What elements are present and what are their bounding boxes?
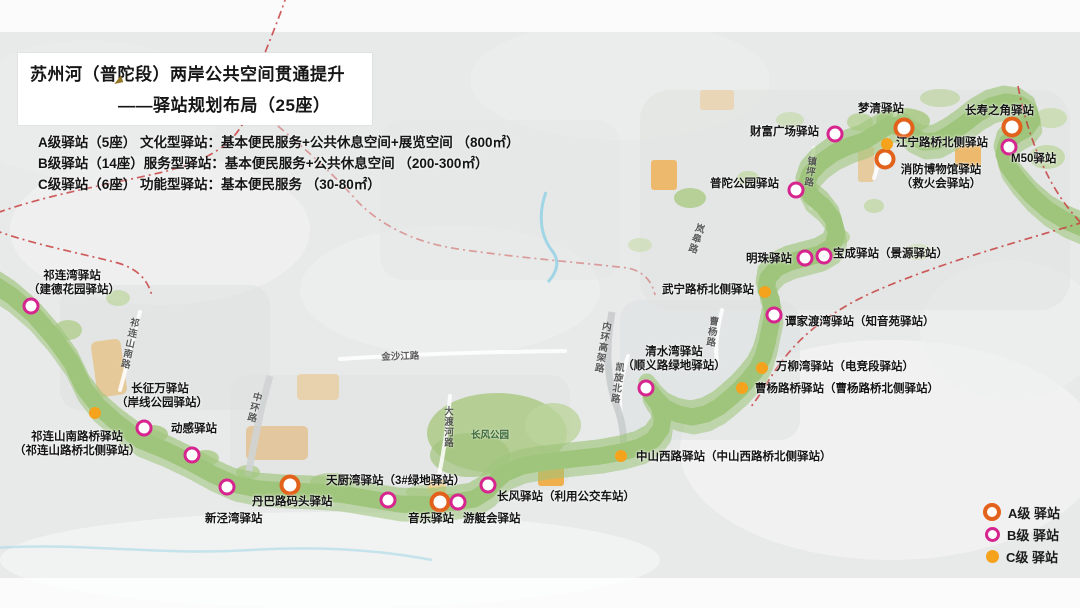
legend-c-level-dot-icon [986,550,999,563]
station-marker-danba-wharf [280,475,301,496]
page-title: 苏州河（普陀段）两岸公共空间贯通提升 [30,60,362,85]
legend-b-level-ring-icon [985,527,1000,542]
legend-a-level-ring-icon [983,503,1001,521]
station-label-m50: M50驿站 [1011,153,1056,167]
station-label-xinjing-bay: 新泾湾驿站 [205,513,263,527]
station-marker-zhongshan-west [615,450,627,462]
title-box: 苏州河（普陀段）两岸公共空间贯通提升 ——驿站规划布局（25座） [18,53,372,125]
station-label-changshou-corner: 长寿之角驿站 [965,105,1034,119]
station-label-caoyang-bridge: 曹杨路桥驿站（曹杨路桥北侧驿站） [755,383,939,397]
station-marker-baocheng [816,248,833,265]
planning-map-slide: 祁连山南路中环路金沙江路大渡河路长风公园内环高架路凯旋北路岚皋路曹杨路镇坪路 梦… [0,0,1080,608]
station-marker-mingzhu [797,250,814,267]
legend-row-a: A级 驿站 [983,501,1060,523]
station-label-changfeng: 长风驿站（利用公交车站） [497,491,635,505]
legend-row-b: B级 驿站 [983,523,1060,545]
legend-c-label: C级 驿站 [1006,547,1058,566]
station-marker-qilian-bay [23,298,40,315]
station-label-qingshui-bay: 清水湾驿站（顺义路绿地驿站） [622,346,726,373]
station-label-jiangning-bridge-north: 江宁路桥北侧驿站 [896,137,988,151]
station-marker-wanliu-bay [756,362,768,374]
station-marker-tanjiadu-bay [766,307,783,324]
station-marker-jiangning-bridge-north [881,138,893,150]
map-legend: A级 驿站 B级 驿站 C级 驿站 [983,501,1060,567]
station-marker-caoyang-bridge [736,382,748,394]
station-marker-xinjing-bay [219,479,236,496]
station-label-mengqing: 梦清驿站 [858,103,904,117]
road-label-jinshajiang-rd: 金沙江路 [381,348,419,363]
class-a-line: A级驿站（5座） 文化型驿站：基本便民服务+公共休息空间+展览空间 （800㎡） [38,132,520,153]
station-marker-putuo-park [788,182,805,199]
station-marker-yachting-club [450,494,467,511]
station-label-wanliu-bay: 万柳湾驿站（电竞段驿站） [776,361,914,375]
road-label-daduhe-rd: 大渡河路 [440,406,454,448]
station-marker-donggan [184,447,201,464]
station-label-caifu-plaza: 财富广场驿站 [750,126,819,140]
station-marker-wuning-bridge-north [759,286,771,298]
station-label-changzheng: 长征万驿站（岸线公园驿站） [116,383,204,410]
legend-a-label: A级 驿站 [1008,503,1060,522]
station-label-baocheng: 宝成驿站（景源驿站） [833,248,948,262]
station-label-yachting-club: 游艇会驿站 [463,513,521,527]
station-label-donggan: 动感驿站 [171,423,217,437]
station-label-yinyue: 音乐驿站 [408,513,454,527]
station-label-putuo-park: 普陀公园驿站 [710,178,779,192]
station-label-qilianshan-bridge: 祁连山南路桥驿站（祁连山路桥北侧驿站） [14,431,140,458]
class-c-line: C级驿站（6座） 功能型驿站：基本便民服务 （30-80㎡） [38,174,520,195]
station-marker-mengqing [894,118,915,139]
station-label-zhongshan-west: 中山西路驿站（中山西路桥北侧驿站） [636,451,832,465]
legend-row-c: C级 驿站 [983,545,1060,567]
classification-legend: A级驿站（5座） 文化型驿站：基本便民服务+公共休息空间+展览空间 （800㎡）… [38,132,520,195]
station-marker-changfeng [480,477,497,494]
station-marker-qingshui-bay [638,380,655,397]
station-marker-changzheng [89,407,101,419]
station-marker-changshou-corner [1002,117,1023,138]
legend-b-label: B级 驿站 [1007,525,1059,544]
class-b-line: B级驿站（14座）服务型驿站：基本便民服务+公共休息空间 （200-300㎡） [38,153,520,174]
station-label-danba-wharf: 丹巴路码头驿站 [252,496,333,510]
page-subtitle: ——驿站规划布局（25座） [30,91,362,116]
station-label-tanjiadu-bay: 谭家渡湾驿站（知音苑驿站） [785,316,935,330]
station-label-tianchu-bay: 天厨湾驿站（3#绿地驿站） [326,475,465,489]
station-label-mingzhu: 明珠驿站 [746,253,792,267]
road-label-changfeng-park: 长风公园 [471,427,509,441]
station-label-qilian-bay: 祁连湾驿站（建德花园驿站） [28,270,116,297]
station-label-fire-museum: 消防博物馆驿站（救火会驿站） [893,164,989,191]
station-marker-caifu-plaza [827,126,844,143]
station-marker-tianchu-bay [380,492,397,509]
station-label-wuning-bridge-north: 武宁路桥北侧驿站 [662,284,754,298]
station-marker-yinyue [430,492,451,513]
